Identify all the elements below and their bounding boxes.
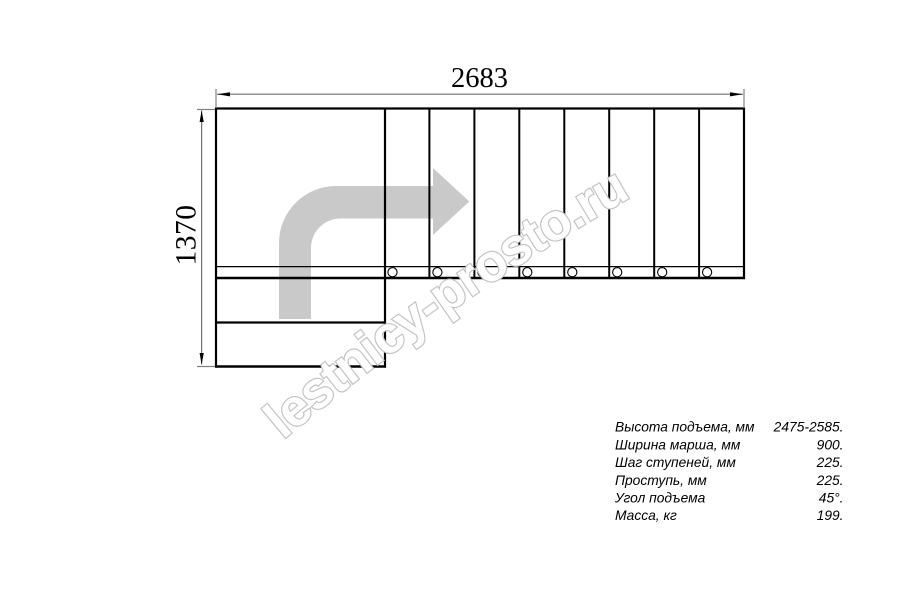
svg-text:225.: 225.: [816, 455, 844, 470]
svg-text:900.: 900.: [817, 437, 844, 452]
svg-text:Угол подъема: Угол подъема: [614, 491, 706, 506]
svg-text:Шаг ступеней, мм: Шаг ступеней, мм: [615, 455, 736, 470]
svg-text:2683: 2683: [451, 63, 508, 94]
svg-text:Высота подъема, мм: Высота подъема, мм: [615, 420, 755, 435]
svg-text:2475-2585.: 2475-2585.: [773, 420, 844, 435]
svg-text:199.: 199.: [817, 508, 844, 523]
svg-text:Масса, кг: Масса, кг: [615, 508, 677, 523]
svg-text:Ширина марша, мм: Ширина марша, мм: [615, 437, 741, 452]
svg-text:1370: 1370: [171, 205, 203, 266]
svg-text:Проступь, мм: Проступь, мм: [615, 473, 707, 488]
svg-text:45°.: 45°.: [819, 491, 844, 506]
svg-text:225.: 225.: [816, 473, 844, 488]
